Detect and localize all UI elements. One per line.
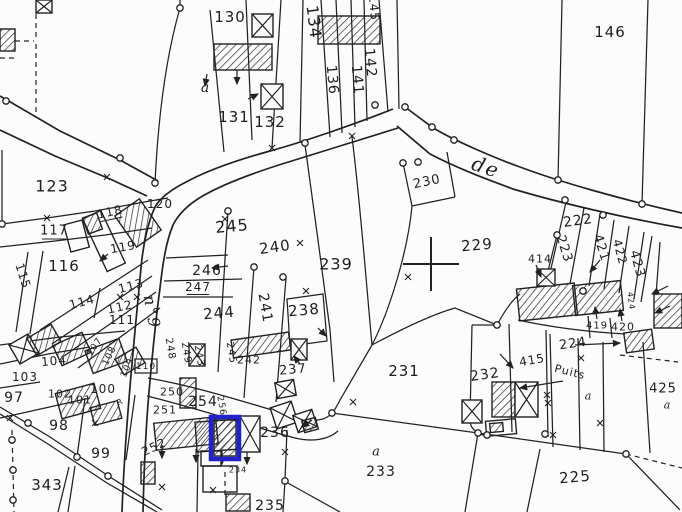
parcel-label-115: 115 <box>12 262 33 291</box>
crossed-building <box>36 0 52 13</box>
boundary-xmark <box>350 399 356 405</box>
boundary-node <box>329 410 335 416</box>
parcel-label-237: 237 <box>278 361 307 378</box>
hatched-building <box>214 44 272 70</box>
crossed-building <box>252 14 273 37</box>
parcel-label-225: 225 <box>558 467 591 488</box>
boundary-node <box>152 180 158 186</box>
boundary-node <box>542 431 548 437</box>
boundary-node <box>555 177 561 183</box>
parcel-label-97: 97 <box>4 390 24 406</box>
parcel-label-241: 241 <box>255 292 276 324</box>
parcel-label-101: 101 <box>68 394 92 407</box>
boundary-node <box>623 451 629 457</box>
parcel-label-244: 244 <box>202 303 235 324</box>
crossed-building <box>537 269 555 286</box>
hatched-building <box>573 281 624 316</box>
parcel-label-252: 252 <box>139 435 168 459</box>
parcel-label-222: 222 <box>562 211 594 231</box>
parcel-label-136: 136 <box>323 64 342 95</box>
hatched-building <box>516 283 577 321</box>
boundary-node <box>639 201 645 207</box>
boundary-node <box>177 5 183 11</box>
parcel-label-248: 248 <box>163 337 178 361</box>
parcel-label-247: 247 <box>185 280 211 294</box>
boundary-node <box>494 322 500 328</box>
cadastral-map-canvas[interactable]: 130a131132134136141142145146de2302292222… <box>0 0 682 512</box>
parcel-label-254: 254 <box>188 394 218 410</box>
parcel-label-116: 116 <box>48 257 80 275</box>
boundary-node <box>3 98 9 104</box>
boundary-node <box>475 430 481 436</box>
parcel-label-131: 131 <box>218 108 250 126</box>
parcel-label-a: a <box>585 390 594 403</box>
boundary-node <box>25 420 31 426</box>
parcel-label-145: 145 <box>366 0 382 22</box>
lane-bottomleft-lower-edge <box>0 414 157 512</box>
parcel-label-110: 110 <box>136 362 156 372</box>
parcel-label-98: 98 <box>49 418 69 434</box>
parcel-label-a: a <box>201 80 211 96</box>
boundary-node <box>117 155 123 161</box>
parcel-label-114: 114 <box>68 292 97 312</box>
parcel-label-120: 120 <box>147 197 173 211</box>
parcel-label-117: 117 <box>40 224 68 239</box>
street-name-de: de <box>469 151 504 183</box>
parcel-label-235: 235 <box>255 498 285 512</box>
crossed-building <box>291 339 307 360</box>
boundary-node <box>105 473 111 479</box>
parcel-label-425: 425 <box>649 382 677 397</box>
boundary-xmark <box>405 274 411 280</box>
boundary-node <box>74 454 80 460</box>
boundary-node <box>10 467 16 473</box>
parcel-label-423: 423 <box>626 249 648 280</box>
boundary-node <box>251 264 257 270</box>
parcel-label-a: a <box>372 445 382 460</box>
parcel-label-119: 119 <box>109 238 137 256</box>
boundary-xmark <box>303 288 309 294</box>
boundary-node <box>429 124 435 130</box>
parcel-label-123: 123 <box>35 177 69 196</box>
parcel-label-245: 245 <box>214 215 249 237</box>
parcel-label-100: 100 <box>90 382 116 396</box>
boundary-node <box>415 159 421 165</box>
boundary-node <box>10 497 16 503</box>
parcel-label-104: 104 <box>40 353 67 369</box>
parcel-label-224: 224 <box>558 335 588 354</box>
parcel-label-142: 142 <box>361 47 380 78</box>
boundary-node <box>9 437 15 443</box>
parcel-label-420: 420 <box>611 321 635 334</box>
road-topleft-upper-edge <box>0 96 158 181</box>
crossed-building <box>462 400 482 423</box>
cadastral-map: 130a131132134136141142145146de2302292222… <box>0 0 682 512</box>
well-label: Puits <box>553 362 587 382</box>
parcel-label-246: 246 <box>192 263 222 279</box>
parcel-label-343: 343 <box>31 476 63 494</box>
hatched-building <box>0 29 15 51</box>
annotation-arrow <box>652 286 668 294</box>
parcel-label-130: 130 <box>214 8 246 26</box>
parcel-label-230: 230 <box>412 172 442 192</box>
boundary-node <box>0 221 5 227</box>
crossed-building <box>275 379 296 398</box>
parcel-label-233: 233 <box>366 464 396 480</box>
parcel-label-134: 134 <box>303 4 326 40</box>
boundary-node <box>282 478 288 484</box>
boundary-node <box>225 208 231 214</box>
hatched-building <box>226 494 250 511</box>
parcel-label-111: 111 <box>109 313 135 327</box>
parcel-label-236: 236 <box>260 425 290 441</box>
boundary-node <box>451 137 457 143</box>
boundary-xmark <box>297 240 303 246</box>
boundary-xmark <box>159 484 165 490</box>
parcel-label-99: 99 <box>91 446 111 462</box>
parcel-label-419: 419 <box>586 321 608 332</box>
parcel-label-113: 113 <box>117 276 146 296</box>
parcel-label-240: 240 <box>258 236 292 258</box>
parcel-label-a: a <box>664 399 673 412</box>
annotation-arrow <box>500 354 513 368</box>
parcel-label-239: 239 <box>319 255 353 274</box>
boundary-xmark <box>134 294 140 300</box>
street-name-n9: n°9 <box>140 293 165 330</box>
boundary-node <box>580 288 586 294</box>
parcel-label-415: 415 <box>518 351 546 369</box>
hatched-building <box>492 382 515 417</box>
boundary-xmark <box>282 449 288 455</box>
boundary-node <box>402 104 408 110</box>
parcel-label-238: 238 <box>287 300 320 321</box>
boundary-node <box>600 212 606 218</box>
boundary-node <box>484 432 490 438</box>
crossed-building <box>261 84 283 109</box>
parcel-label-146: 146 <box>594 23 626 41</box>
parcel-label-231: 231 <box>388 362 420 380</box>
boundary-node <box>562 197 568 203</box>
annotation-arrow <box>318 328 326 336</box>
boundary-node <box>302 140 308 146</box>
survey-cross-icon <box>403 237 459 291</box>
parcel-label-103: 103 <box>12 370 38 384</box>
hatched-building <box>490 422 504 432</box>
parcel-label-132: 132 <box>254 113 286 131</box>
parcel-label-256: 256 <box>214 395 227 417</box>
parcel-label-234: 234 <box>229 466 247 475</box>
boundary-xmark <box>597 420 603 426</box>
parcel-label-242: 242 <box>237 354 261 367</box>
parcel-label-250: 250 <box>160 386 184 399</box>
parcel-label-424: 424 <box>625 291 636 310</box>
boundary-node <box>280 274 286 280</box>
hatched-building <box>141 462 155 484</box>
parcel-label-251: 251 <box>153 404 177 417</box>
boundary-node <box>372 102 378 108</box>
boundary-node <box>400 160 406 166</box>
crossed-building <box>240 416 260 452</box>
parcel-label-229: 229 <box>460 235 493 256</box>
parcel-label-414: 414 <box>528 253 552 266</box>
